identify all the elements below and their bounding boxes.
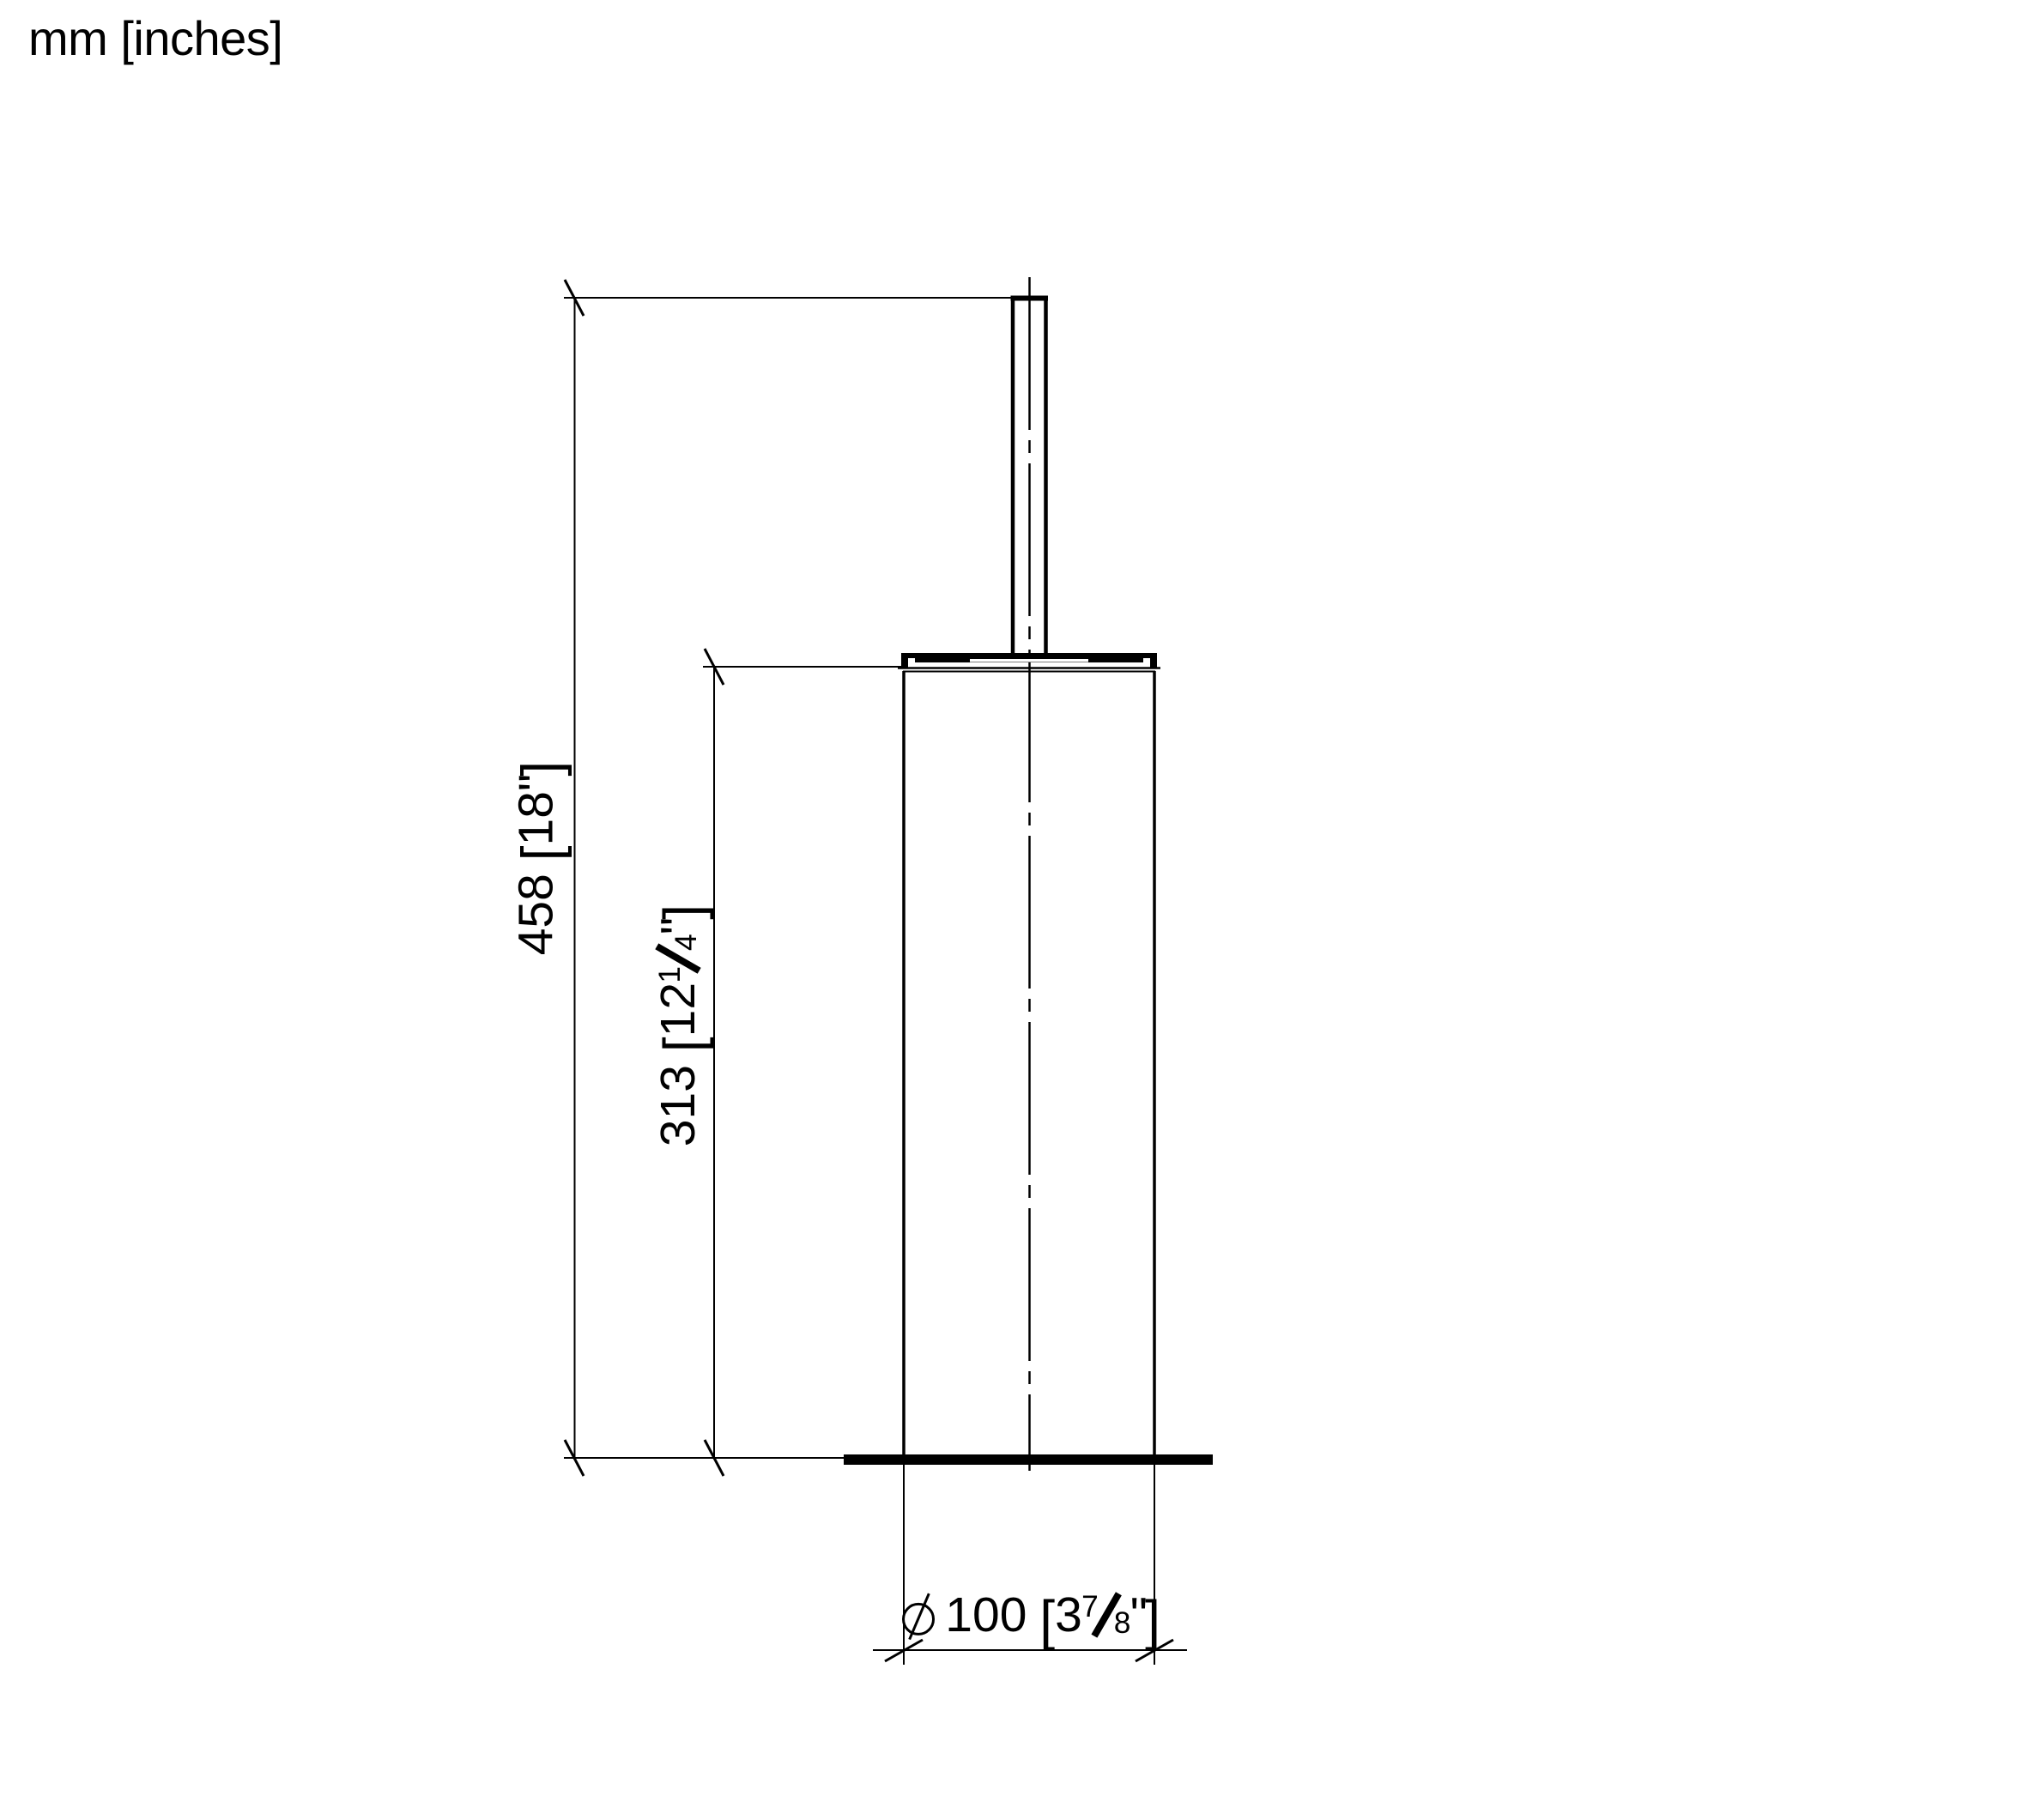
dimension-container-height (703, 649, 901, 1476)
dim-value-inches: 3 (1055, 1587, 1082, 1642)
drawing-canvas: mm [inches] (0, 0, 2023, 1820)
dimension-label-container-height: 313[1214"] (651, 904, 703, 1146)
dim-value-mm: 458 (509, 874, 564, 955)
bracket-close: ] (652, 904, 714, 920)
bracket-close: ] (1145, 1589, 1160, 1651)
fraction-seven-eighths: 78 (1082, 1588, 1130, 1637)
lid (898, 653, 1160, 672)
inch-mark: " (509, 777, 564, 791)
dimension-label-diameter: 100[378"] (901, 1588, 1160, 1640)
dimension-label-overall-height: 458[18"] (512, 761, 561, 956)
dimension-overall-height (564, 280, 1011, 1476)
inch-mark: " (651, 920, 706, 934)
bracket-close: ] (511, 761, 572, 777)
bracket-open: [ (511, 845, 572, 861)
diameter-symbol-icon (901, 1594, 941, 1636)
bracket-open: [ (1039, 1589, 1055, 1651)
dim-value-mm: 100 (945, 1587, 1027, 1642)
bracket-open: [ (652, 1037, 714, 1052)
drawing-linework (0, 0, 2023, 1820)
dim-value-mm: 313 (651, 1065, 706, 1146)
inch-mark: " (1130, 1587, 1145, 1642)
dim-value-inches: 18 (509, 791, 564, 845)
fraction-one-quarter: 14 (651, 934, 700, 983)
ground-line (844, 1454, 1213, 1465)
dim-value-inches: 12 (651, 983, 706, 1037)
